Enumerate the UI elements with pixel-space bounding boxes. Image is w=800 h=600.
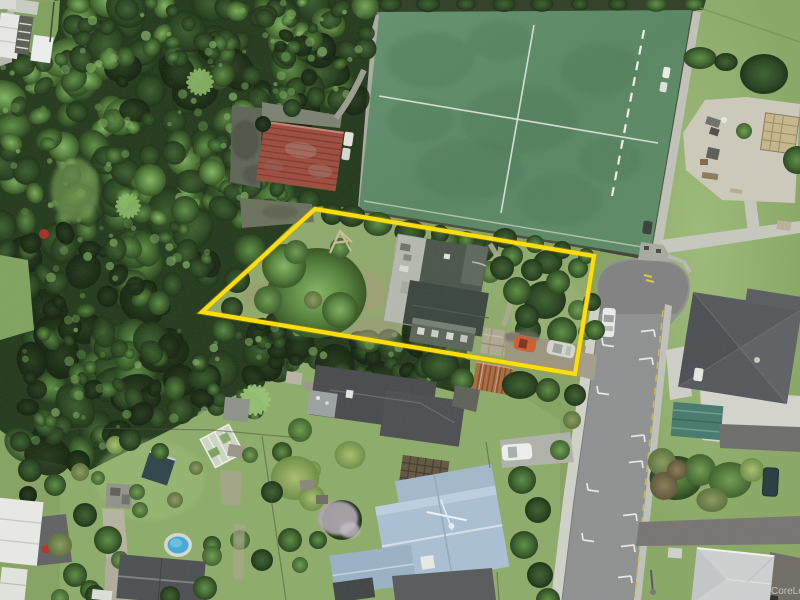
svg-text:CoreLogic: CoreLogic bbox=[771, 586, 800, 597]
